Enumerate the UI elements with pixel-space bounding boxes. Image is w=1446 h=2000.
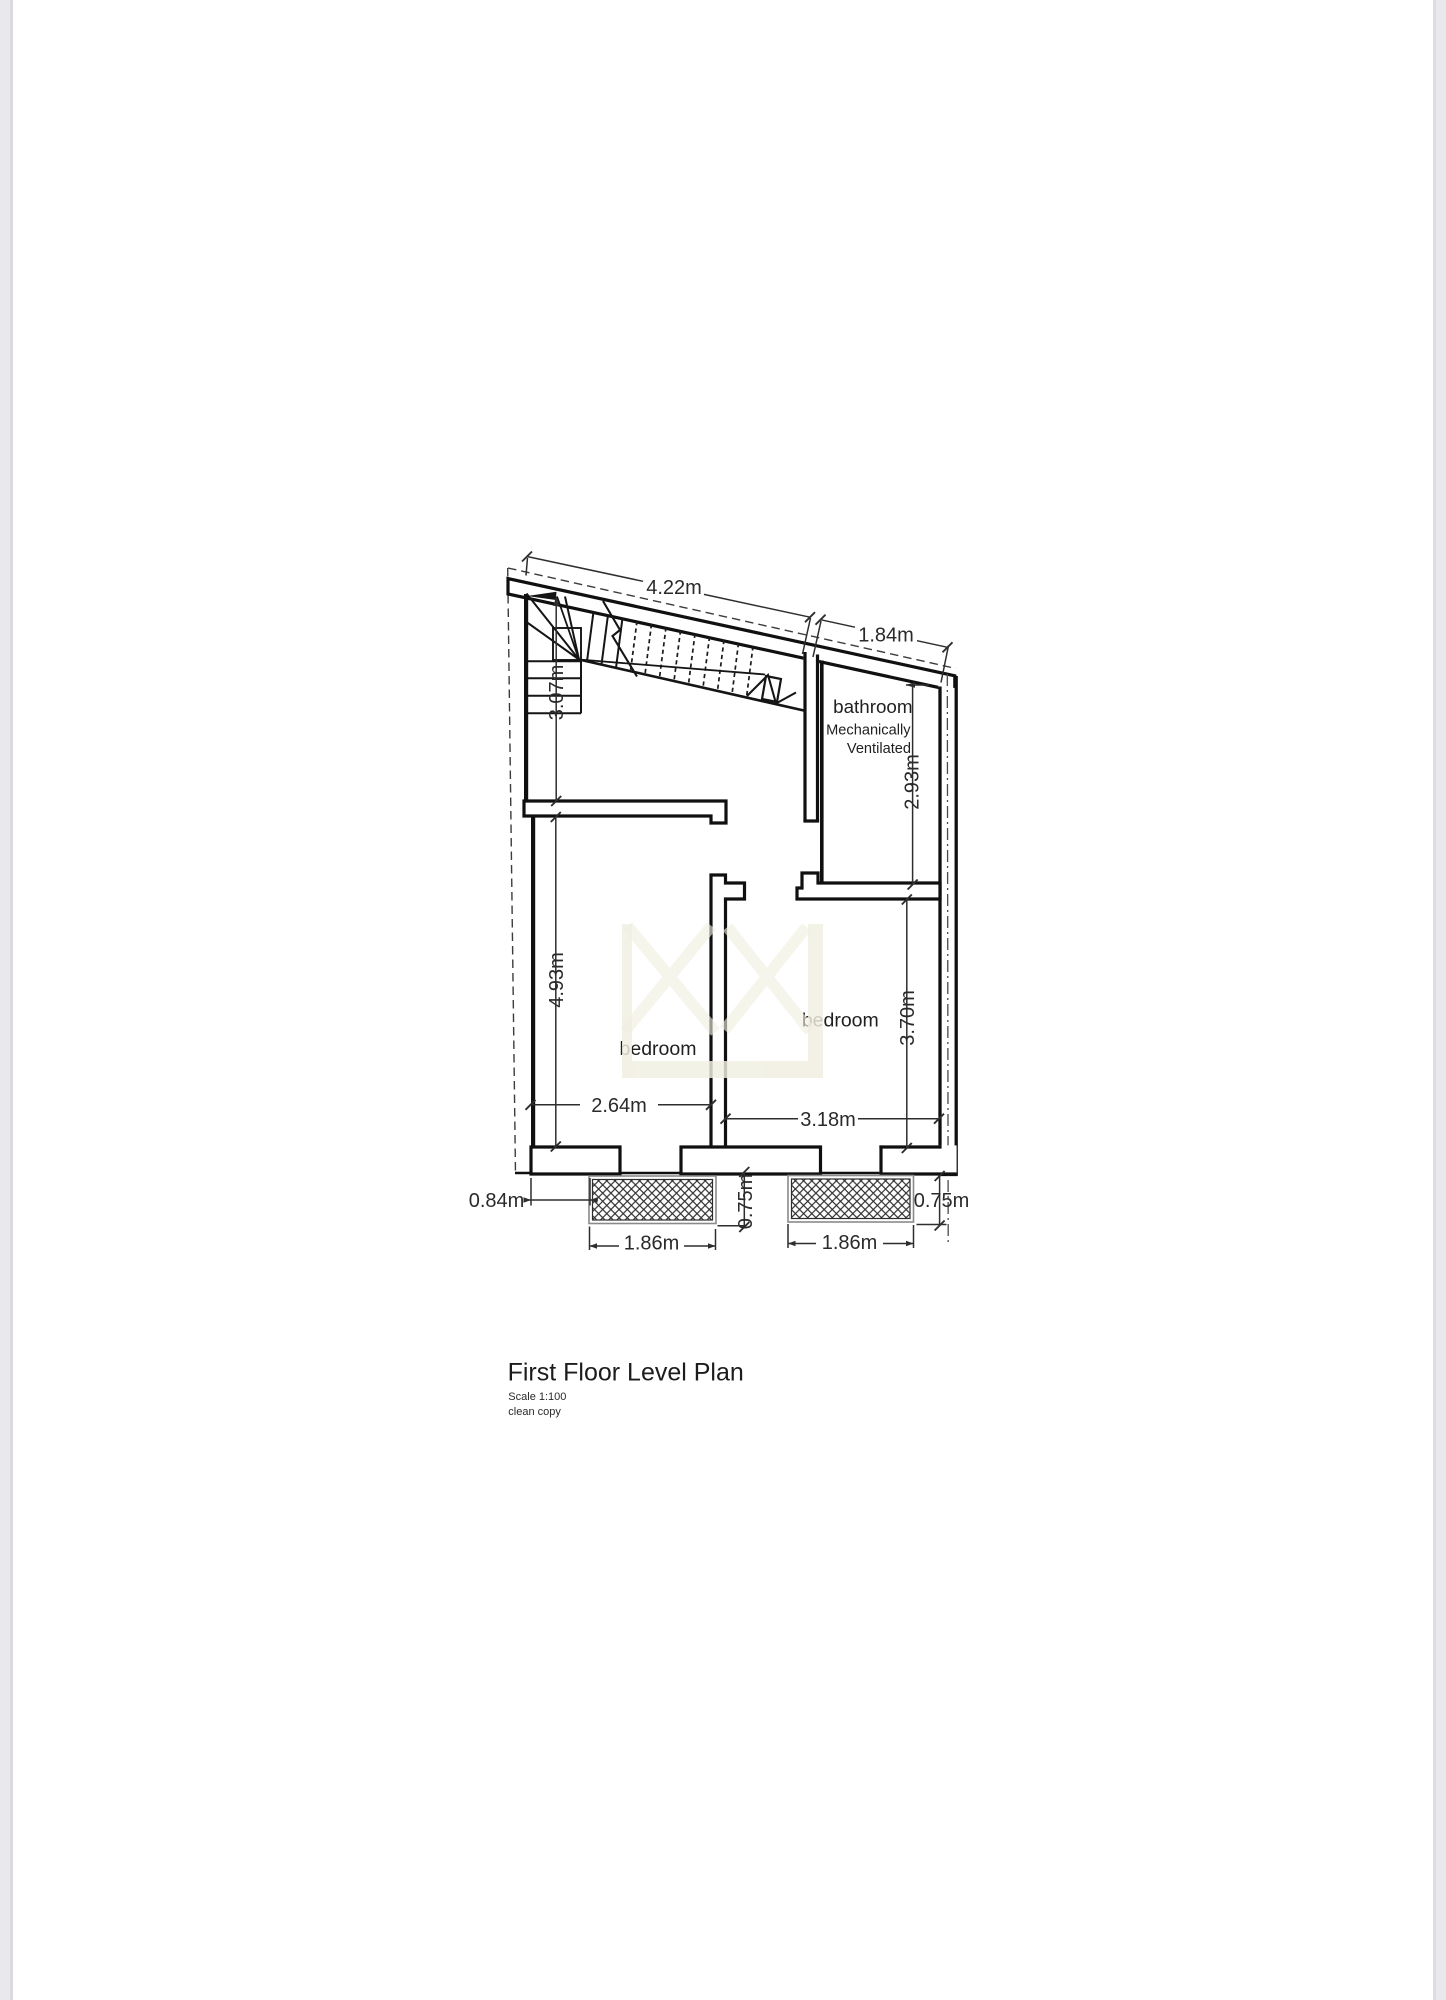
svg-text:First Floor Level Plan: First Floor Level Plan [508, 1359, 744, 1387]
svg-text:4.22m: 4.22m [646, 577, 702, 599]
svg-text:2.93m: 2.93m [902, 754, 924, 810]
svg-text:1.84m: 1.84m [858, 625, 914, 647]
svg-text:0.75m: 0.75m [914, 1190, 970, 1212]
svg-text:1.86m: 1.86m [624, 1233, 680, 1255]
svg-text:0.75m: 0.75m [735, 1174, 757, 1230]
svg-text:2.64m: 2.64m [591, 1095, 647, 1117]
svg-text:0.84m: 0.84m [469, 1190, 525, 1212]
svg-text:bathroom: bathroom [833, 696, 912, 717]
svg-text:1.86m: 1.86m [822, 1232, 878, 1254]
svg-text:3.70m: 3.70m [897, 990, 919, 1046]
svg-text:clean copy: clean copy [508, 1406, 561, 1418]
svg-text:3.07m: 3.07m [546, 665, 568, 721]
svg-text:Scale 1:100: Scale 1:100 [508, 1391, 566, 1403]
svg-text:Mechanically: Mechanically [826, 723, 911, 739]
svg-text:Ventilated: Ventilated [847, 741, 911, 757]
svg-text:4.93m: 4.93m [546, 952, 568, 1008]
svg-text:3.18m: 3.18m [800, 1109, 856, 1131]
